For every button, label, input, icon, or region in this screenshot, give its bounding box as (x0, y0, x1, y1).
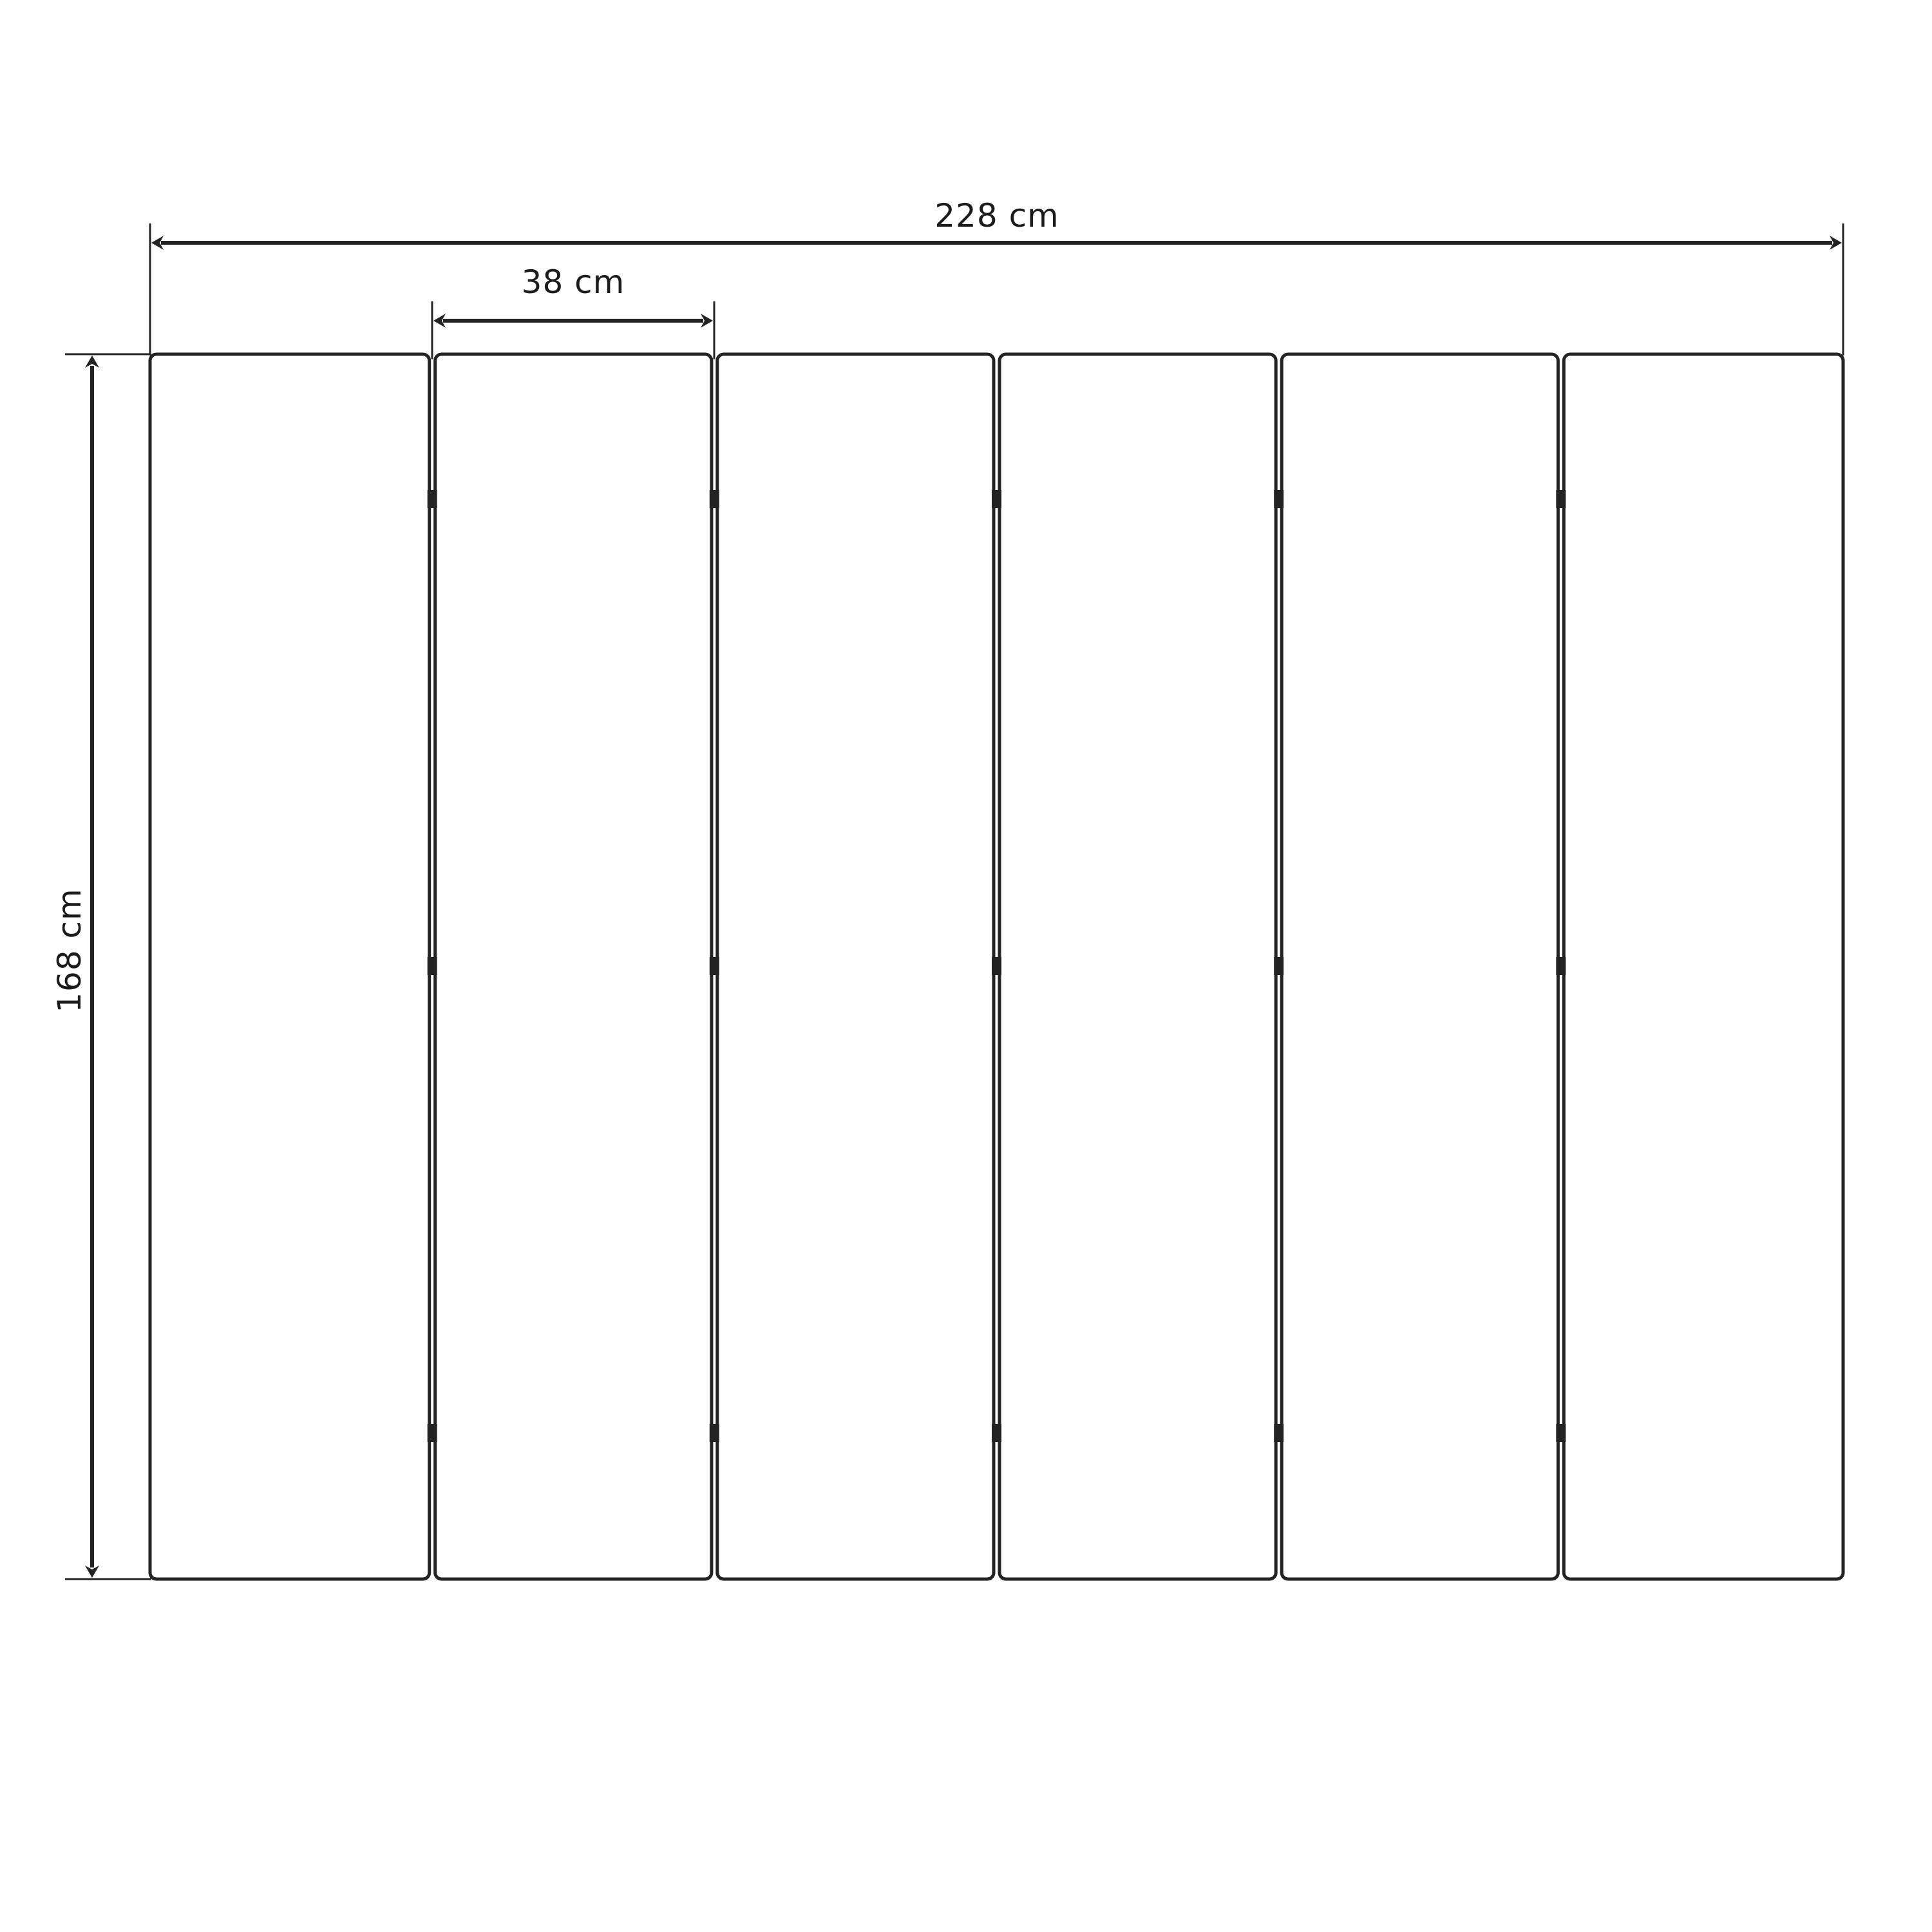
panel-connector (428, 957, 437, 975)
panel-connector (1274, 957, 1283, 975)
panel (435, 354, 712, 1579)
panel-connector (1274, 490, 1283, 508)
height-dimension: 168 cm (51, 354, 151, 1579)
panel-connector (710, 1424, 719, 1442)
panel (717, 354, 994, 1579)
panel-dimension-diagram: 228 cm 38 cm 168 cm (0, 0, 1932, 1932)
panel-connector (1274, 1424, 1283, 1442)
drawing-canvas: 228 cm 38 cm 168 cm (0, 0, 1932, 1932)
panel-connector (1556, 490, 1566, 508)
panel-connector (1556, 1424, 1566, 1442)
panel-width-dimension: 38 cm (432, 263, 714, 359)
total-width-label: 228 cm (934, 197, 1059, 234)
panel-connector (710, 957, 719, 975)
panel (150, 354, 430, 1579)
panel-connector (428, 490, 437, 508)
panel (999, 354, 1276, 1579)
panel-connector (992, 490, 1001, 508)
height-label: 168 cm (51, 888, 88, 1013)
panel-width-label: 38 cm (522, 263, 625, 301)
panel-connector (1556, 957, 1566, 975)
panel-connector (992, 1424, 1001, 1442)
total-width-dimension: 228 cm (150, 197, 1843, 355)
panel (1282, 354, 1558, 1579)
panel (1564, 354, 1843, 1579)
panel-connector (710, 490, 719, 508)
panel-connector (428, 1424, 437, 1442)
panel-connector (992, 957, 1001, 975)
